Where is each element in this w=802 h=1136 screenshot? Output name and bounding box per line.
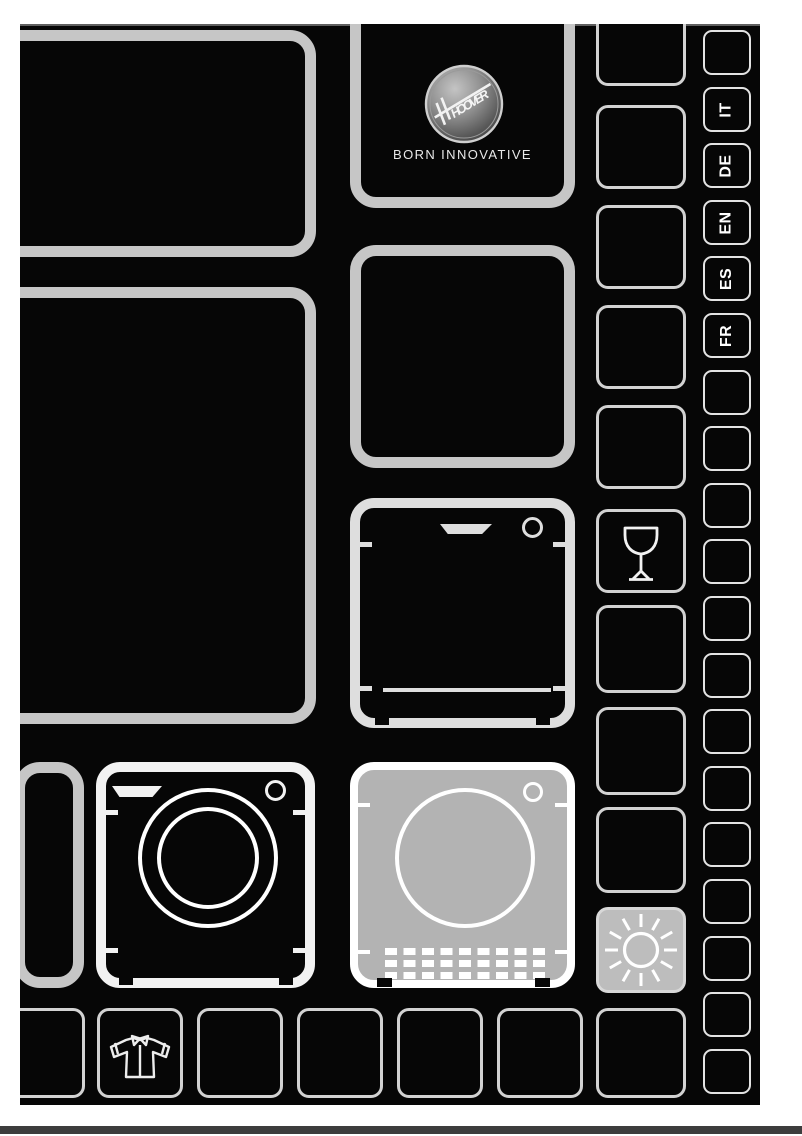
foot-notch bbox=[377, 978, 392, 987]
foot-notch bbox=[119, 976, 133, 985]
tile-blank bbox=[397, 1008, 483, 1098]
foot-notch bbox=[536, 716, 550, 725]
tile-small-blank bbox=[703, 539, 751, 584]
panel-tick bbox=[293, 810, 305, 815]
panel-tick bbox=[106, 810, 118, 815]
tile-blank-large bbox=[350, 245, 575, 468]
wine-glass-icon bbox=[599, 512, 683, 590]
tile-small-blank bbox=[703, 992, 751, 1037]
tile-cropped-blank bbox=[20, 762, 84, 988]
page-footer-bar bbox=[0, 1126, 802, 1134]
tile-small-blank bbox=[703, 879, 751, 924]
tile-blank bbox=[596, 605, 686, 693]
tile-small-blank bbox=[703, 653, 751, 698]
vent-grille-row bbox=[385, 960, 545, 967]
hoover-logo: HOOVER bbox=[424, 64, 504, 144]
tile-blank bbox=[20, 1008, 85, 1098]
tile-small-blank bbox=[703, 822, 751, 867]
handle bbox=[440, 524, 492, 534]
detergent-drawer bbox=[112, 786, 162, 797]
tile-blank bbox=[596, 405, 686, 489]
tile-blank bbox=[297, 1008, 383, 1098]
tile-blank bbox=[596, 707, 686, 795]
panel-tick bbox=[553, 542, 565, 547]
tile-blank bbox=[596, 24, 686, 86]
tile-small-blank bbox=[703, 936, 751, 981]
tile-large-blank-1 bbox=[20, 30, 316, 257]
tile-small-blank bbox=[703, 709, 751, 754]
language-label: DE bbox=[718, 154, 736, 177]
panel-tick bbox=[293, 948, 305, 953]
tile-blank bbox=[197, 1008, 283, 1098]
language-tab-es: ES bbox=[703, 256, 751, 301]
dishwasher-tile bbox=[350, 498, 575, 728]
manual-cover-page: HOOVER BORN INNOVATIVE bbox=[0, 0, 802, 1136]
tile-small-blank bbox=[703, 596, 751, 641]
language-tab-fr: FR bbox=[703, 313, 751, 358]
sun-tile bbox=[596, 907, 686, 993]
tile-blank bbox=[596, 807, 686, 893]
foot-notch bbox=[375, 716, 389, 725]
language-tab-it: IT bbox=[703, 87, 751, 132]
tile-large-blank-2 bbox=[20, 287, 316, 724]
kickplate-line bbox=[383, 688, 551, 692]
language-tab-en: EN bbox=[703, 200, 751, 245]
panel-tick bbox=[555, 803, 567, 807]
tile-small-blank bbox=[703, 1049, 751, 1094]
foot-notch bbox=[535, 978, 550, 987]
knob bbox=[265, 780, 286, 801]
panel-tick bbox=[106, 948, 118, 953]
panel-tick bbox=[360, 686, 372, 691]
language-label: FR bbox=[718, 324, 736, 346]
tile-small-blank bbox=[703, 30, 751, 75]
brand-tagline: BORN INNOVATIVE bbox=[361, 147, 564, 162]
wine-glass-tile bbox=[596, 509, 686, 593]
panel-tick bbox=[360, 542, 372, 547]
foot-notch bbox=[279, 976, 293, 985]
tile-blank bbox=[596, 1008, 686, 1098]
shirt-tile bbox=[97, 1008, 183, 1098]
tile-small-blank bbox=[703, 766, 751, 811]
tile-blank bbox=[596, 105, 686, 189]
vent-grille-row bbox=[385, 972, 545, 979]
panel-tick bbox=[553, 686, 565, 691]
door-inner bbox=[157, 807, 259, 909]
vent-grille-row bbox=[385, 948, 545, 955]
tile-blank bbox=[596, 305, 686, 389]
knob bbox=[523, 782, 543, 802]
panel-tick bbox=[555, 950, 567, 954]
language-tab-de: DE bbox=[703, 143, 751, 188]
language-label: ES bbox=[718, 267, 736, 289]
sun-icon bbox=[599, 910, 683, 990]
language-label: EN bbox=[718, 211, 736, 234]
panel-tick bbox=[358, 803, 370, 807]
tumble-dryer-tile bbox=[350, 762, 575, 988]
door bbox=[395, 788, 535, 928]
panel-tick bbox=[358, 950, 370, 954]
hoover-logo-tile: HOOVER BORN INNOVATIVE bbox=[350, 24, 575, 208]
tile-small-blank bbox=[703, 483, 751, 528]
tile-small-blank bbox=[703, 370, 751, 415]
cover-sheet: HOOVER BORN INNOVATIVE bbox=[20, 24, 760, 1105]
tile-blank bbox=[596, 205, 686, 289]
tile-blank bbox=[497, 1008, 583, 1098]
washing-machine-tile bbox=[96, 762, 315, 988]
shirt-icon bbox=[100, 1011, 180, 1095]
language-label: IT bbox=[718, 102, 736, 117]
tile-small-blank bbox=[703, 426, 751, 471]
knob bbox=[522, 517, 543, 538]
